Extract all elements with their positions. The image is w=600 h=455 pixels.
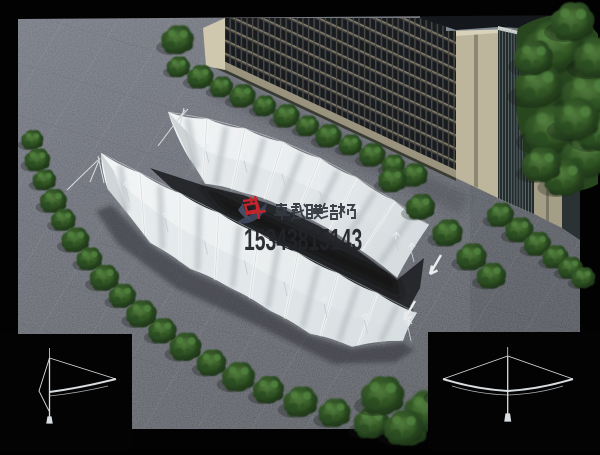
- svg-text:15343815143: 15343815143: [244, 224, 362, 258]
